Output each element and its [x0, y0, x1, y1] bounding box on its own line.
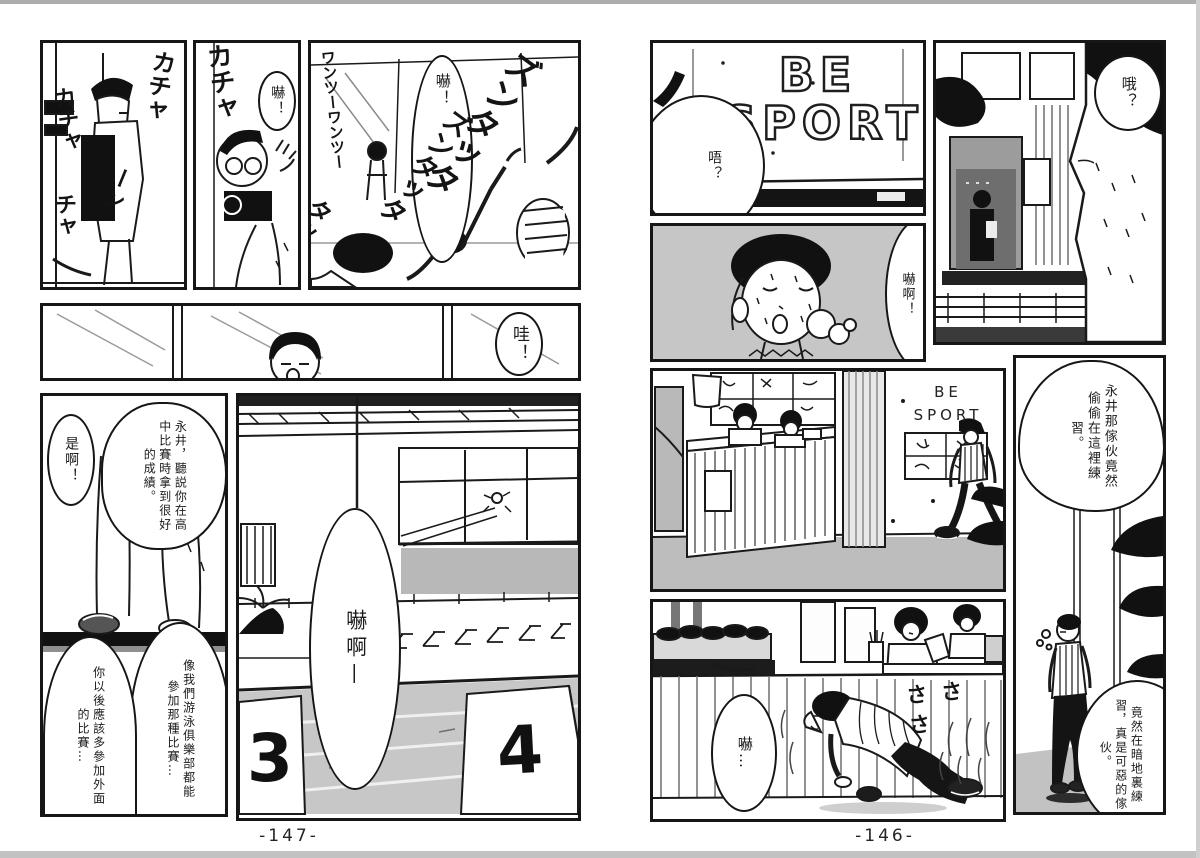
panel-pool-hall: 嚇啊— 3 4: [236, 393, 581, 821]
panel-sign-wall: BE SPORT 唔？: [650, 40, 926, 216]
speech-bubble-nagai: 永井，聽説你在高中比賽時拿到很好的成績。: [101, 402, 227, 550]
panel-gym-machine: カチャ カチャ ーン チャ: [40, 40, 187, 290]
sign-line-be: BE: [723, 51, 913, 99]
sign-line-sport: SPORT: [903, 404, 993, 427]
scan-edge-top: [0, 0, 1200, 4]
lane-number-3: 3: [247, 726, 293, 792]
page-number-left: -147-: [234, 826, 344, 846]
bubble-text: 永井那傢伙竟然偷偷在這裡練習。: [1066, 377, 1117, 495]
panel-sweat-face: 嚇啊！: [650, 223, 926, 362]
panel-window-strip: 哇！: [40, 303, 581, 381]
sfx-kacha-4: チャ: [47, 193, 79, 237]
panel-standing-boy: 永井那傢伙竟然偷偷在這裡練習。 竟然在暗地裏練習，真是可惡的傢伙。: [1013, 355, 1166, 815]
panel-camera-man: カチャ 嚇！: [193, 40, 301, 290]
speech-bubble-shh: 嚇…: [711, 694, 777, 812]
speech-bubble-wow: 哇！: [495, 312, 543, 376]
bubble-text: 你以後應該多參加外面的比賽…: [74, 666, 105, 806]
panel-sneak: 嚇… さささ: [650, 599, 1006, 822]
panel-profile: 哦？: [933, 40, 1166, 345]
bubble-text: 是啊！: [62, 436, 80, 484]
bubble-text: 像我們游泳俱樂部都能參加那種比賽…: [164, 654, 195, 804]
bubble-text: 唔？: [705, 150, 723, 182]
panel-poolside-talk: 永井，聽説你在高中比賽時拿到很好的成績。 是啊！ 像我們游泳俱樂部都能參加那種比…: [40, 393, 228, 817]
bubble-text: 嚇啊！: [898, 272, 915, 317]
bubble-text: 嚇…: [734, 736, 754, 770]
speech-bubble-yeah: 是啊！: [47, 414, 95, 506]
bubble-text: 永井，聽説你在高中比賽時拿到很好的成績。: [141, 416, 188, 536]
bubble-text: 嚇啊—: [341, 609, 368, 690]
lane-number-4: 4: [495, 717, 544, 785]
be-sport-sign-small: BE SPORT: [903, 381, 993, 426]
panel-aerobics: ズンタッタ ズンタッタ ワンツーワンツー タッタ 嚇！: [308, 40, 581, 290]
speech-bubble-club: 像我們游泳俱樂部都能參加那種比賽…: [129, 622, 228, 817]
bubble-text: 嚇！: [268, 85, 286, 117]
scan-edge-bottom: [0, 851, 1200, 858]
manga-spread: カチャ カチャ ーン チャ カチャ: [0, 0, 1200, 858]
artwork-sweat-face: [653, 226, 923, 359]
page-number-right: -146-: [830, 826, 940, 846]
sfx-sasasa: さささ: [905, 671, 1006, 739]
bubble-text: 哇！: [508, 325, 530, 363]
speech-bubble-scream: 嚇啊—: [309, 508, 401, 790]
bubble-text: 竟然在暗地裏練習，真是可惡的傢伙。: [1097, 699, 1144, 811]
sign-line-be: BE: [903, 381, 993, 404]
bubble-text: 哦？: [1118, 76, 1138, 110]
speech-bubble-shock-1: 嚇！: [258, 71, 296, 131]
scan-edge-right: [1196, 0, 1200, 858]
panel-reception: BE SPORT: [650, 368, 1006, 592]
speech-bubble-oh: 哦？: [1094, 55, 1162, 131]
